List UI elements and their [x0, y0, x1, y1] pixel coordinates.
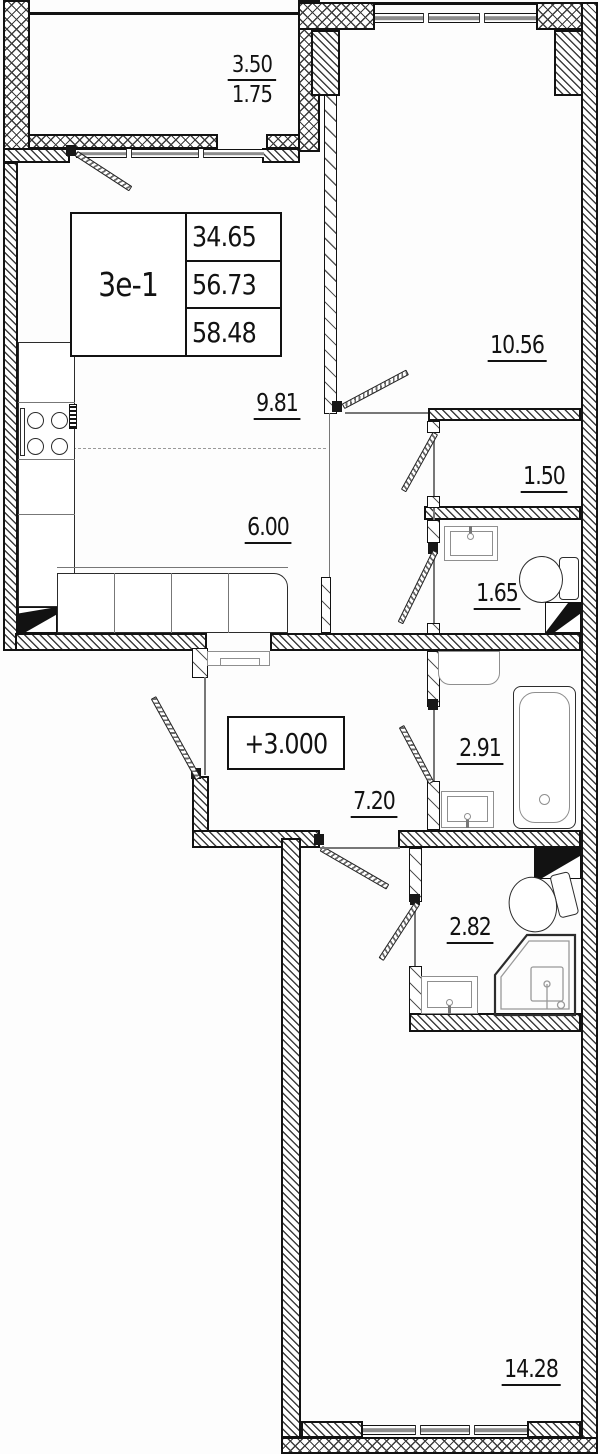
faucet-icon: [448, 1005, 451, 1014]
door-hinge: [428, 699, 438, 710]
window-tick: [126, 149, 132, 158]
duct-fill: [545, 602, 581, 633]
toilet-bowl: [519, 556, 563, 603]
wall-segment: [266, 134, 300, 149]
wall-segment: [281, 838, 301, 1438]
doorway-frame: [220, 658, 260, 666]
living-area-label: 6.00: [245, 512, 292, 544]
wall-segment: [324, 95, 337, 414]
burner: [27, 412, 44, 429]
room-top-area-label: 10.56: [488, 330, 547, 362]
wall-segment: [554, 30, 583, 96]
sofa: [57, 573, 288, 633]
bathroom-door-leaf: [399, 725, 434, 784]
balcony-area-counted: 1.75: [232, 81, 272, 108]
wc-area-label: 1.65: [474, 578, 521, 610]
corner-duct-icon: [18, 607, 57, 633]
door-hinge: [332, 401, 342, 412]
wall-segment: [427, 496, 440, 508]
wall-segment: [311, 30, 340, 96]
window-glass-bar: [375, 16, 536, 20]
bathroom-area-label: 2.91: [457, 733, 504, 765]
unit-area-row: 34.65: [187, 214, 280, 262]
apartment-area-value: 56.73: [192, 268, 256, 301]
unit-number-cell: 3е-1: [72, 214, 187, 355]
door-threshold: [320, 847, 400, 849]
stove-handle: [20, 408, 25, 456]
wall-segment: [3, 148, 70, 163]
wall-segment: [28, 12, 300, 15]
vent-grille: [69, 404, 77, 429]
duct-icon: [545, 602, 581, 633]
floor-plan: 3е-1 34.65 56.73 58.48 +3.000 3.50 1.75 …: [0, 0, 600, 1454]
faucet-icon: [467, 533, 474, 540]
wall-segment: [3, 162, 18, 651]
sofa-divider: [228, 573, 229, 633]
doorway-frame: [192, 648, 208, 678]
wall-segment: [3, 0, 30, 163]
wall-segment: [398, 830, 581, 848]
bottom-room-window: [363, 1425, 527, 1435]
unit-area-row: 56.73: [187, 262, 280, 310]
counter-divider: [18, 514, 75, 515]
wall-segment: [427, 520, 440, 543]
wall-segment: [270, 633, 581, 651]
wall-segment: [301, 1421, 363, 1438]
sofa-back-line: [57, 567, 288, 568]
total-area-value: 58.48: [192, 316, 256, 349]
window-glass-bar: [363, 1428, 527, 1432]
shower-icon: [493, 933, 577, 1017]
washer-icon: [438, 651, 500, 685]
wall-segment: [204, 677, 206, 775]
wall-segment: [581, 2, 598, 1452]
door-threshold: [345, 412, 428, 414]
faucet-icon: [446, 999, 453, 1006]
unit-areas-column: 34.65 56.73 58.48: [187, 214, 280, 355]
faucet-icon: [466, 819, 469, 828]
window-tick: [198, 149, 204, 158]
unit-info-table: 3е-1 34.65 56.73 58.48: [70, 212, 282, 357]
wall-segment: [192, 776, 209, 832]
wall-segment: [424, 506, 581, 520]
living-area-value: 34.65: [192, 220, 256, 253]
bottom-room-door-leaf: [320, 846, 390, 890]
faucet-icon: [464, 813, 471, 820]
wall-segment: [527, 1421, 581, 1438]
window-glass-bar: [76, 152, 264, 156]
wall-segment: [298, 2, 375, 30]
stove-icon: [18, 403, 75, 460]
balcony-area-full: 3.50: [228, 52, 277, 81]
wall-segment: [28, 134, 218, 149]
window-tick: [479, 13, 485, 23]
window-tick: [423, 13, 429, 23]
unit-number: 3е-1: [99, 265, 159, 304]
door-hinge: [314, 834, 324, 845]
sofa-divider: [114, 573, 115, 633]
burner: [51, 438, 68, 455]
entrance-door-leaf: [151, 696, 201, 780]
window-tick: [469, 1425, 475, 1435]
burner: [51, 412, 68, 429]
wall-segment: [428, 408, 581, 421]
wardrobe-area-label: 1.50: [521, 461, 568, 493]
wall-segment: [281, 1437, 598, 1454]
balcony-area-label: 3.50 1.75: [228, 52, 277, 108]
room-bottom-area-label: 14.28: [502, 1354, 561, 1386]
elevation-value: +3.000: [245, 727, 328, 760]
hall-area-label: 7.20: [351, 786, 398, 818]
top-room-door-leaf: [342, 370, 409, 410]
wall-segment: [321, 577, 331, 633]
top-room-window: [375, 13, 536, 23]
bathtub-drain: [539, 794, 550, 805]
wall-segment: [262, 148, 300, 163]
window-tick: [415, 1425, 421, 1435]
duct-fill: [18, 607, 57, 633]
unit-area-row: 58.48: [187, 309, 280, 355]
elevation-mark: +3.000: [227, 716, 345, 770]
kitchen-area-label: 9.81: [254, 388, 301, 420]
balcony-window: [76, 149, 264, 158]
burner: [27, 438, 44, 455]
shower-room-area-label: 2.82: [447, 912, 494, 944]
sofa-divider: [171, 573, 172, 633]
wall-segment: [15, 633, 207, 651]
wall-segment: [427, 781, 440, 830]
zone-divider-line: [329, 413, 330, 577]
